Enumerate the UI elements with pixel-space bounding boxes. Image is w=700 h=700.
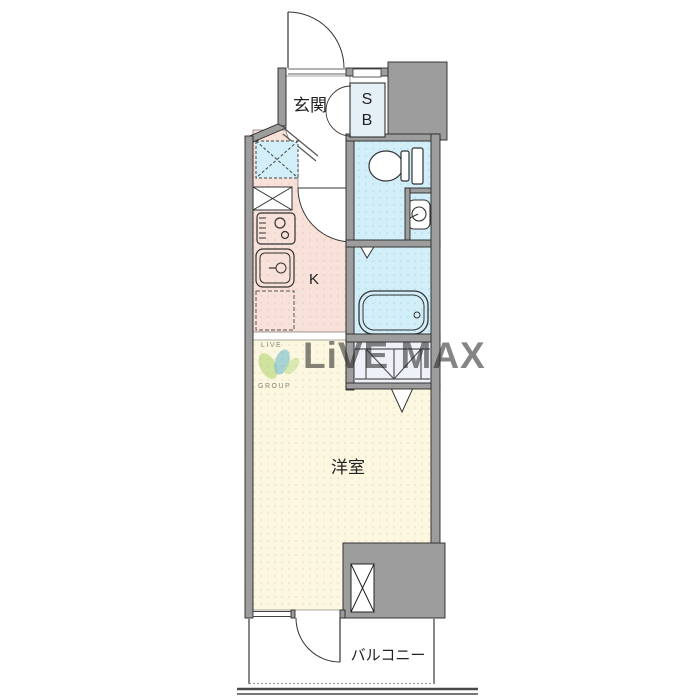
label-western-room: 洋室 — [331, 458, 365, 477]
meter-box — [353, 69, 381, 77]
label-shoebox-b: B — [362, 112, 373, 129]
washbasin-icon — [408, 200, 430, 229]
watermark-logo-bottom: GROUP — [258, 383, 291, 390]
toilet-icon — [369, 148, 423, 184]
x-box-icon — [253, 187, 292, 210]
door-arc-icon-entrance — [288, 12, 344, 68]
pipe-space-box — [351, 564, 374, 612]
door-arc-icon-balcony — [296, 618, 340, 662]
label-balcony: バルコニー — [351, 647, 426, 664]
floorplan-svg: 玄関 S B K 洋室 バルコニー LIVE GROUP LiVE MAX — [0, 0, 700, 700]
balcony-window — [253, 612, 291, 617]
label-shoebox-s: S — [362, 91, 373, 108]
floorplan-page: 玄関 S B K 洋室 バルコニー LIVE GROUP LiVE MAX — [0, 0, 700, 700]
label-entrance: 玄関 — [293, 96, 327, 115]
entrance-threshold — [288, 69, 346, 74]
watermark-logo-top: LIVE — [261, 342, 282, 349]
label-kitchen: K — [309, 271, 319, 288]
watermark-brand: LiVE MAX — [303, 335, 486, 376]
washing-machine-space-icon — [256, 141, 298, 178]
